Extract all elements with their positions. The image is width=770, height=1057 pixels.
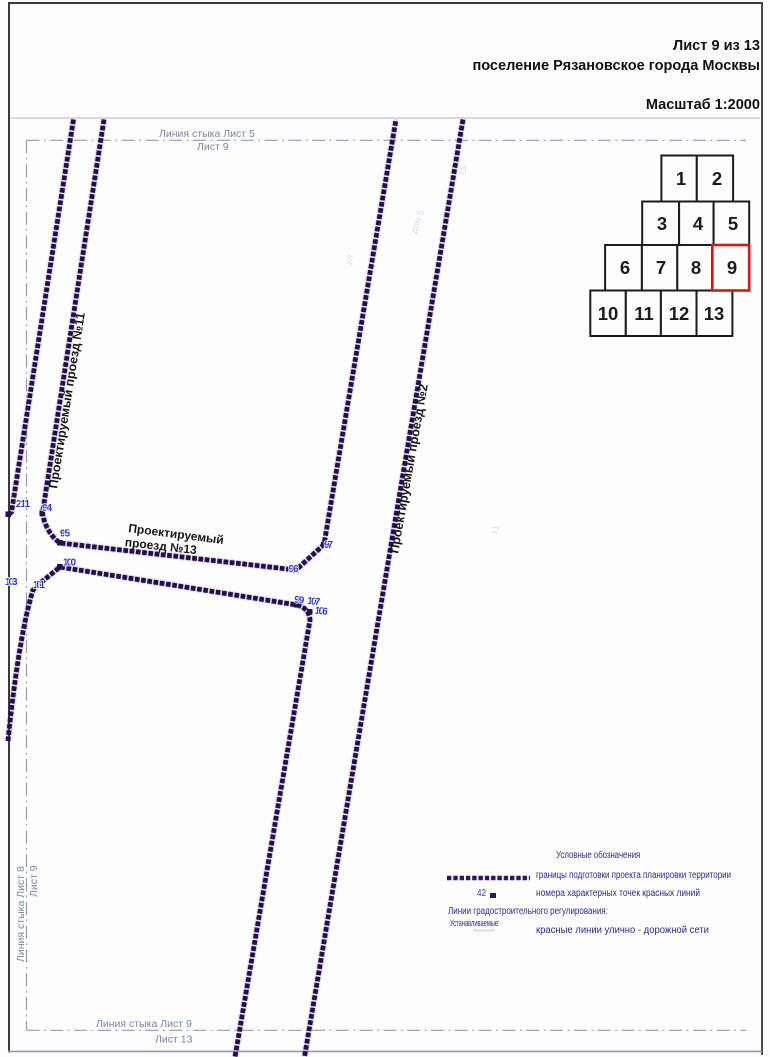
- svg-text:12: 12: [669, 303, 690, 324]
- svg-text:99: 99: [294, 595, 306, 607]
- svg-text:Линия стыка Лист 5: Линия стыка Лист 5: [159, 128, 255, 140]
- svg-text:106: 106: [314, 606, 329, 618]
- svg-text:94: 94: [42, 503, 52, 514]
- svg-text:13: 13: [704, 303, 725, 324]
- svg-text:5: 5: [728, 213, 738, 234]
- svg-text:Лист 9: Лист 9: [197, 141, 229, 153]
- svg-text:3: 3: [657, 213, 667, 234]
- svg-text:211: 211: [16, 499, 30, 510]
- svg-text:100: 100: [63, 558, 76, 569]
- svg-text:11: 11: [634, 303, 654, 324]
- svg-text:96: 96: [289, 564, 299, 575]
- svg-text:10: 10: [598, 303, 619, 324]
- svg-text:Линия стыка Лист 9: Линия стыка Лист 9: [96, 1018, 192, 1030]
- svg-text:1: 1: [676, 168, 686, 189]
- svg-text:101: 101: [33, 580, 45, 591]
- svg-text:Линия стыка Лист 8: Линия стыка Лист 8: [15, 866, 27, 962]
- svg-text:Лист 13: Лист 13: [155, 1034, 193, 1046]
- svg-text:103: 103: [5, 577, 18, 588]
- svg-text:Лист 9: Лист 9: [28, 865, 40, 897]
- svg-text:2: 2: [712, 168, 722, 189]
- svg-text:7: 7: [656, 257, 666, 278]
- svg-text:9: 9: [727, 257, 737, 278]
- svg-text:6: 6: [620, 257, 630, 278]
- svg-text:4: 4: [693, 213, 704, 234]
- svg-text:8: 8: [691, 257, 701, 278]
- svg-text:97: 97: [324, 540, 333, 551]
- svg-text:95: 95: [60, 529, 70, 540]
